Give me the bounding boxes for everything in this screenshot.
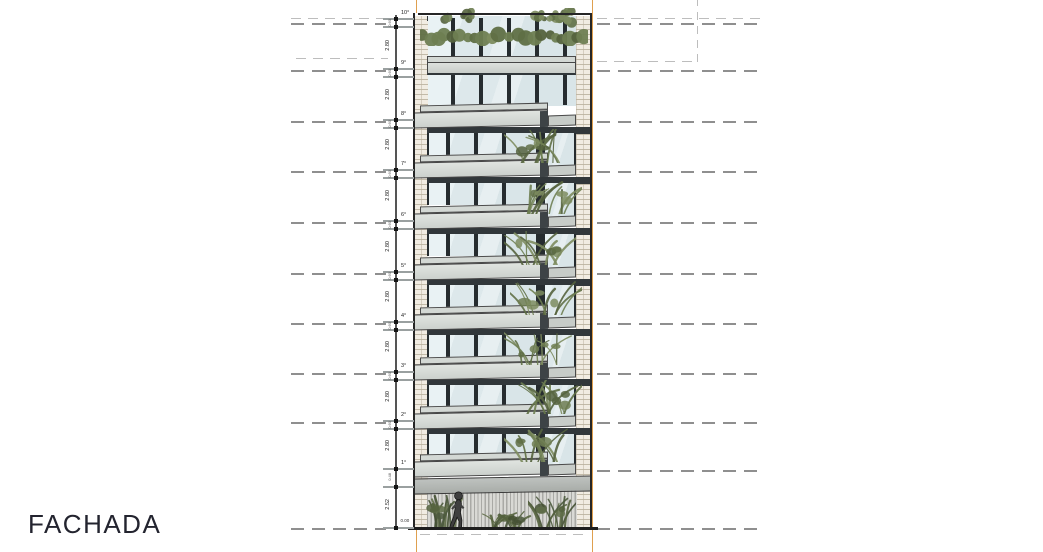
slab-dimension-text: 0.60 <box>388 221 392 229</box>
balcony-plant <box>510 380 582 414</box>
floor-slab-band <box>427 62 576 75</box>
window-mullion <box>427 335 429 357</box>
slab-dimension-text: 0.60 <box>388 322 392 330</box>
guide-line-orange <box>592 0 594 552</box>
floor-height-dimension: 2.80 <box>386 291 392 302</box>
floor-label: 9° <box>401 61 406 67</box>
dimension-tick-dot <box>394 320 398 324</box>
balcony-slab-cap <box>540 111 548 127</box>
dimension-tick-dot <box>394 118 398 122</box>
window-mullion <box>446 335 450 357</box>
window-mullion <box>427 285 429 307</box>
balcony-slab-extension <box>548 464 576 476</box>
floor-height-dimension: 2.80 <box>386 89 392 100</box>
slab-dimension-text: 0.60 <box>388 69 392 77</box>
floor-label: 6° <box>401 213 406 219</box>
dimension-tick-dot <box>394 17 398 21</box>
slab-dimension-text: 0.60 <box>388 120 392 128</box>
dashed-level-line <box>597 422 762 424</box>
balcony-slab-cap <box>540 363 548 379</box>
dashed-level-line <box>597 23 762 25</box>
slab-dimension-text: 0.60 <box>388 421 392 429</box>
dimension-tick-dot <box>394 467 398 471</box>
dashed-level-line <box>291 323 386 325</box>
slab-dimension-text: 0.48 <box>388 473 392 481</box>
floor-label: 5° <box>401 264 406 270</box>
facade-elevation-drawing: FACHADA 10°0.609°0.608°0.607°0.606°0.605… <box>0 0 1043 552</box>
dimension-tick-dot <box>394 25 398 29</box>
slab-dimension-text: 0.60 <box>388 372 392 380</box>
neighbor-outline-dashed <box>697 0 698 62</box>
dimension-tick-dot <box>394 419 398 423</box>
dashed-level-line <box>291 273 386 275</box>
balcony-slab <box>414 109 548 128</box>
person-figure <box>446 491 473 530</box>
window-mullion <box>474 234 478 256</box>
window-mullion <box>446 133 450 155</box>
dimension-tick-dot <box>394 328 398 332</box>
balcony-slab-extension <box>548 216 576 228</box>
dashed-level-line <box>291 422 386 424</box>
ground-line <box>408 527 598 530</box>
balcony-slab-extension <box>548 165 576 177</box>
below-grade-dashed <box>420 534 590 535</box>
dimension-tick-dot <box>394 526 398 530</box>
dimension-tick-dot <box>394 126 398 130</box>
window-mullion <box>451 74 455 105</box>
floor-label: 1° <box>401 461 406 467</box>
window-mullion <box>474 133 478 155</box>
balcony-slab-cap <box>540 263 548 279</box>
balcony-plant <box>504 129 576 163</box>
dashed-level-line <box>597 273 762 275</box>
datum-label: 0.00 <box>401 519 410 524</box>
balcony-plant <box>504 331 576 365</box>
dashed-level-line <box>291 373 386 375</box>
balcony-slab-cap <box>540 212 548 228</box>
window-mullion <box>446 385 450 407</box>
window-mullion <box>427 183 429 205</box>
building-outline <box>418 13 590 15</box>
floor-height-dimension: 2.80 <box>386 190 392 201</box>
window-mullion <box>427 234 429 256</box>
window-mullion <box>474 183 478 205</box>
dimension-tick-dot <box>394 427 398 431</box>
neighbor-outline-dashed <box>597 61 697 62</box>
dimension-tick <box>383 486 414 488</box>
window-mullion <box>479 74 483 105</box>
dimension-tick-dot <box>394 176 398 180</box>
window-mullion <box>446 234 450 256</box>
ground-plants <box>528 496 576 529</box>
dimension-tick-dot <box>394 75 398 79</box>
window-mullion <box>502 183 506 205</box>
dashed-level-line <box>291 171 386 173</box>
slab-dimension-text: 0.60 <box>388 272 392 280</box>
dashed-level-line <box>291 18 386 19</box>
dimension-tick <box>383 527 414 529</box>
dimension-tick-dot <box>394 485 398 489</box>
window-mullion <box>535 74 539 105</box>
slab-dimension-text: 0.60 <box>388 170 392 178</box>
window-mullion <box>474 385 478 407</box>
balcony-slab-cap <box>540 313 548 329</box>
window-mullion <box>474 335 478 357</box>
window-mullion <box>446 285 450 307</box>
glass-curtain-wall <box>428 74 577 106</box>
dashed-level-line <box>291 121 386 123</box>
balcony-slab-cap <box>540 460 548 476</box>
dashed-level-line <box>597 373 762 375</box>
balcony-plant <box>510 180 582 214</box>
dimension-tick-dot <box>394 227 398 231</box>
floor-height-dimension: 2.80 <box>386 40 392 51</box>
dashed-level-line <box>597 323 762 325</box>
dashed-level-line <box>597 171 762 173</box>
floor-height-dimension: 2.80 <box>386 391 392 402</box>
dimension-tick-dot <box>394 278 398 282</box>
floor-height-dimension: 2.80 <box>386 241 392 252</box>
building-outline <box>590 13 592 530</box>
dimension-tick-dot <box>394 378 398 382</box>
balcony-plant <box>510 281 582 315</box>
floor-label: 4° <box>401 314 406 320</box>
dimension-tick-dot <box>394 219 398 223</box>
dashed-level-line <box>291 528 386 530</box>
dimension-tick-dot <box>394 67 398 71</box>
dimension-tick-dot <box>394 370 398 374</box>
floor-label: 10° <box>401 11 409 17</box>
floor-label: 3° <box>401 364 406 370</box>
window-mullion <box>446 183 450 205</box>
window-mullion <box>427 133 429 155</box>
window-mullion <box>507 74 511 105</box>
dashed-level-line <box>597 121 762 123</box>
dimension-tick-dot <box>394 168 398 172</box>
balcony-plant <box>504 428 576 462</box>
floor-label: 2° <box>401 413 406 419</box>
slab-dimension-text: 0.60 <box>388 19 392 27</box>
dashed-level-line <box>597 528 762 530</box>
dimension-tick <box>383 468 414 470</box>
page-title: FACHADA <box>28 509 161 540</box>
ground-height-dimension: 2.52 <box>386 499 392 510</box>
balcony-slab-extension <box>548 367 576 379</box>
floor-height-dimension: 2.80 <box>386 341 392 352</box>
window-mullion <box>502 285 506 307</box>
floor-height-dimension: 2.80 <box>386 139 392 150</box>
balcony-slab-cap <box>540 161 548 177</box>
brick-pier-right <box>576 16 591 530</box>
dashed-level-line <box>291 70 386 72</box>
floor-label: 7° <box>401 162 406 168</box>
window-mullion <box>502 385 506 407</box>
window-mullion <box>427 434 429 456</box>
dimension-tick-dot <box>394 270 398 274</box>
window-mullion <box>427 385 429 407</box>
window-mullion <box>563 74 567 105</box>
ground-canopy <box>414 475 591 494</box>
window-mullion <box>474 285 478 307</box>
balcony-slab-cap <box>540 412 548 428</box>
floor-height-dimension: 2.80 <box>386 440 392 451</box>
dashed-level-line <box>597 70 762 72</box>
dashed-level-line <box>291 23 386 25</box>
balcony-plant <box>504 231 576 265</box>
balcony-slab-extension <box>548 267 576 279</box>
dashed-level-line <box>291 222 386 224</box>
dashed-level-line <box>597 18 762 19</box>
balcony-slab-extension <box>548 416 576 428</box>
window-mullion <box>446 434 450 456</box>
balcony-slab-extension <box>548 317 576 329</box>
dashed-level-line <box>597 470 762 472</box>
neighbor-outline-dashed <box>296 58 388 59</box>
floor-label: 8° <box>401 112 406 118</box>
dashed-level-line <box>597 222 762 224</box>
balcony-slab-extension <box>548 115 576 127</box>
